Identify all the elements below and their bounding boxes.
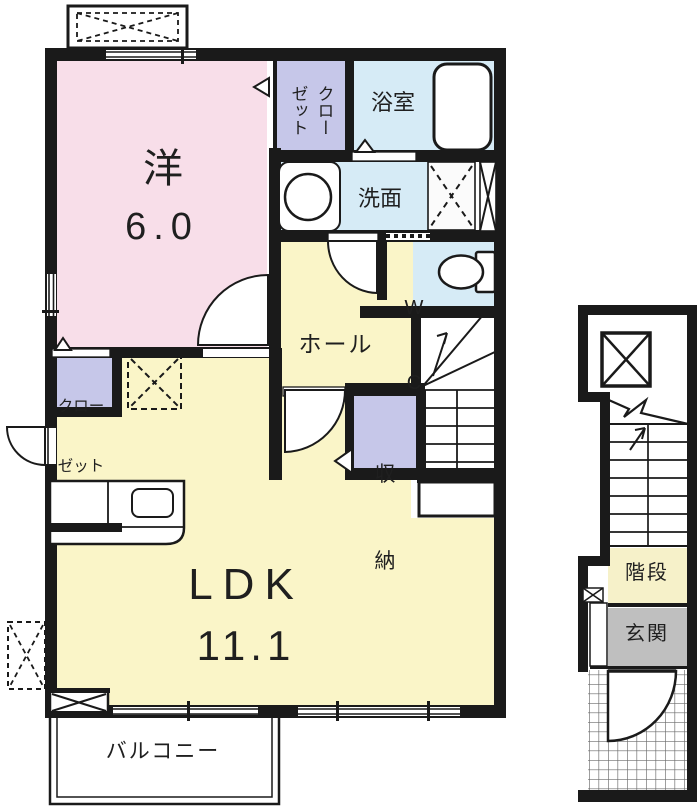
stairs-stairwell bbox=[608, 424, 687, 546]
hall-label: ホール bbox=[277, 331, 395, 357]
wall-hall-left-stub bbox=[269, 348, 282, 480]
left-exterior-door-arc bbox=[7, 427, 45, 465]
wall-right bbox=[494, 48, 506, 718]
hatched-box-icon bbox=[8, 622, 45, 689]
western-room-size: 6.0 bbox=[102, 206, 222, 250]
toilet-icon bbox=[439, 252, 495, 292]
closet-top-label-col2: ゼット bbox=[288, 68, 308, 152]
ldk-label: LDK bbox=[146, 560, 346, 611]
wall-wc-bottom bbox=[360, 306, 506, 318]
wc-label: W C bbox=[396, 246, 432, 421]
wall-wc-left bbox=[377, 240, 387, 300]
wc-label-line1: W bbox=[396, 296, 432, 321]
pillar-box-icon bbox=[48, 688, 110, 716]
western-doorway bbox=[203, 349, 269, 357]
stairwell-x-box bbox=[602, 333, 650, 386]
washroom-label: 洗面 bbox=[340, 186, 420, 211]
ldk-size: 11.1 bbox=[146, 622, 346, 670]
closet-top-left-line bbox=[273, 60, 277, 148]
stair-hall-label: 階段 bbox=[607, 562, 687, 585]
closet-lower-label: クロー ゼット bbox=[48, 357, 114, 497]
bathroom-doorway bbox=[352, 152, 416, 161]
wc-label-line2: C bbox=[396, 371, 432, 396]
western-room-label: 洋 bbox=[133, 146, 193, 192]
floor-plan: 洋 6.0 クロー ゼット 浴室 洗面 W C ホール 収 納 クロー ゼット … bbox=[0, 0, 700, 812]
bathtub-icon bbox=[434, 64, 491, 150]
window-marker-bowtie bbox=[583, 588, 603, 602]
pipe-space-icon bbox=[480, 162, 496, 231]
shutter-box-icon bbox=[68, 6, 187, 48]
stairwell-direction-arrow bbox=[630, 428, 645, 450]
storage-label-line1: 収 bbox=[370, 460, 400, 489]
washbasin-icon bbox=[279, 162, 340, 231]
washing-machine-space-icon bbox=[428, 162, 475, 230]
entrance-side-panel bbox=[590, 603, 607, 666]
balcony-label: バルコニー bbox=[73, 740, 253, 764]
bathroom-label: 浴室 bbox=[352, 90, 434, 115]
closet-lower-label-line1: クロー bbox=[48, 397, 114, 417]
break-line bbox=[602, 397, 688, 424]
storage-label: 収 納 bbox=[370, 402, 400, 605]
closet-top-opening bbox=[267, 60, 273, 148]
washroom-doorway bbox=[328, 233, 378, 241]
wc-dotted-wall bbox=[386, 233, 430, 240]
closet-lower-label-line2: ゼット bbox=[48, 457, 114, 477]
storage-label-line2: 納 bbox=[370, 547, 400, 576]
understair-box bbox=[419, 482, 495, 516]
closet-top-label-col1: クロー bbox=[314, 68, 334, 152]
entrance-label: 玄関 bbox=[607, 623, 687, 646]
